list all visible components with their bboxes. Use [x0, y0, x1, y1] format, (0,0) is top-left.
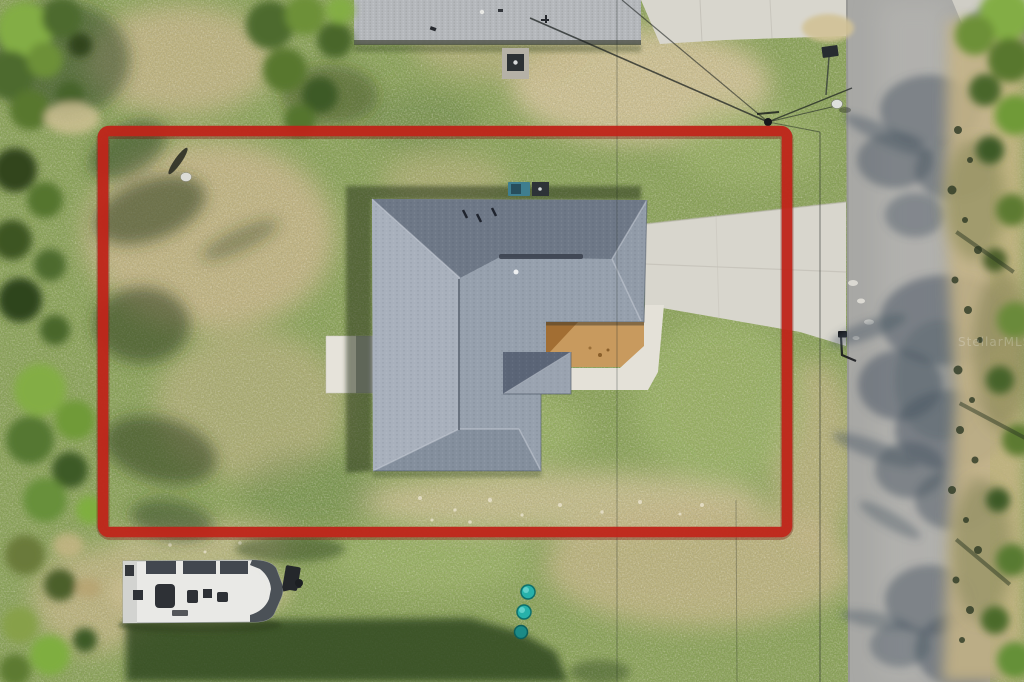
neighbor-ac-unit	[502, 48, 529, 79]
watermark: StellarMLS	[958, 335, 1024, 349]
trailer-slide-toppers	[146, 561, 248, 574]
ac-units	[508, 182, 549, 196]
aerial-photo-canvas: StellarMLS	[0, 0, 1024, 682]
entry-porch-roof	[503, 352, 571, 394]
aerial-photo: StellarMLS	[0, 0, 1024, 682]
ridge-vent	[499, 254, 583, 259]
rv-trailer	[108, 560, 303, 633]
